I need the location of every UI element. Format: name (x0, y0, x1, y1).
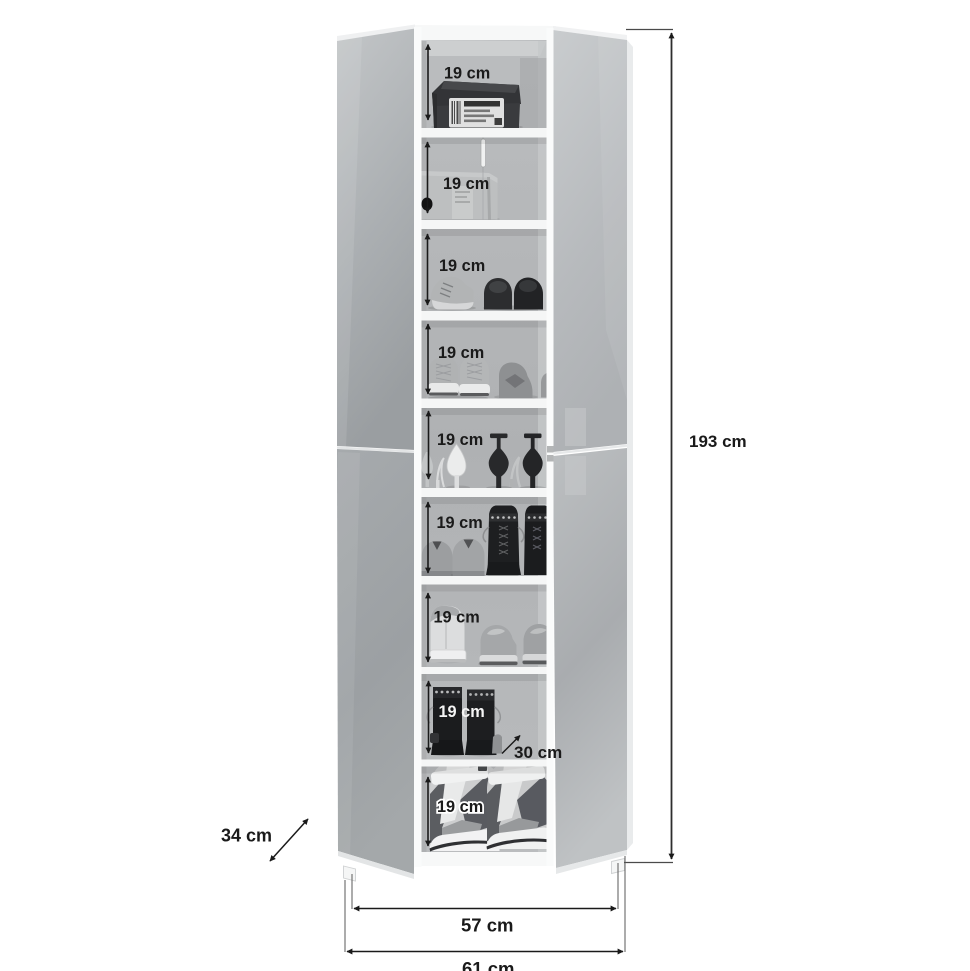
svg-text:19 cm: 19 cm (437, 431, 483, 449)
svg-text:19 cm: 19 cm (439, 703, 485, 721)
svg-text:30 cm: 30 cm (514, 743, 562, 762)
svg-text:19 cm: 19 cm (437, 798, 483, 816)
svg-text:19 cm: 19 cm (437, 514, 483, 532)
svg-text:193 cm: 193 cm (689, 432, 747, 451)
svg-text:57 cm: 57 cm (461, 915, 513, 936)
svg-text:34 cm: 34 cm (221, 826, 272, 846)
svg-text:19 cm: 19 cm (443, 175, 489, 193)
svg-text:19 cm: 19 cm (438, 344, 484, 362)
svg-text:19 cm: 19 cm (434, 609, 480, 627)
svg-text:19 cm: 19 cm (439, 257, 485, 275)
svg-text:19 cm: 19 cm (444, 65, 490, 83)
svg-text:61 cm: 61 cm (462, 958, 514, 971)
